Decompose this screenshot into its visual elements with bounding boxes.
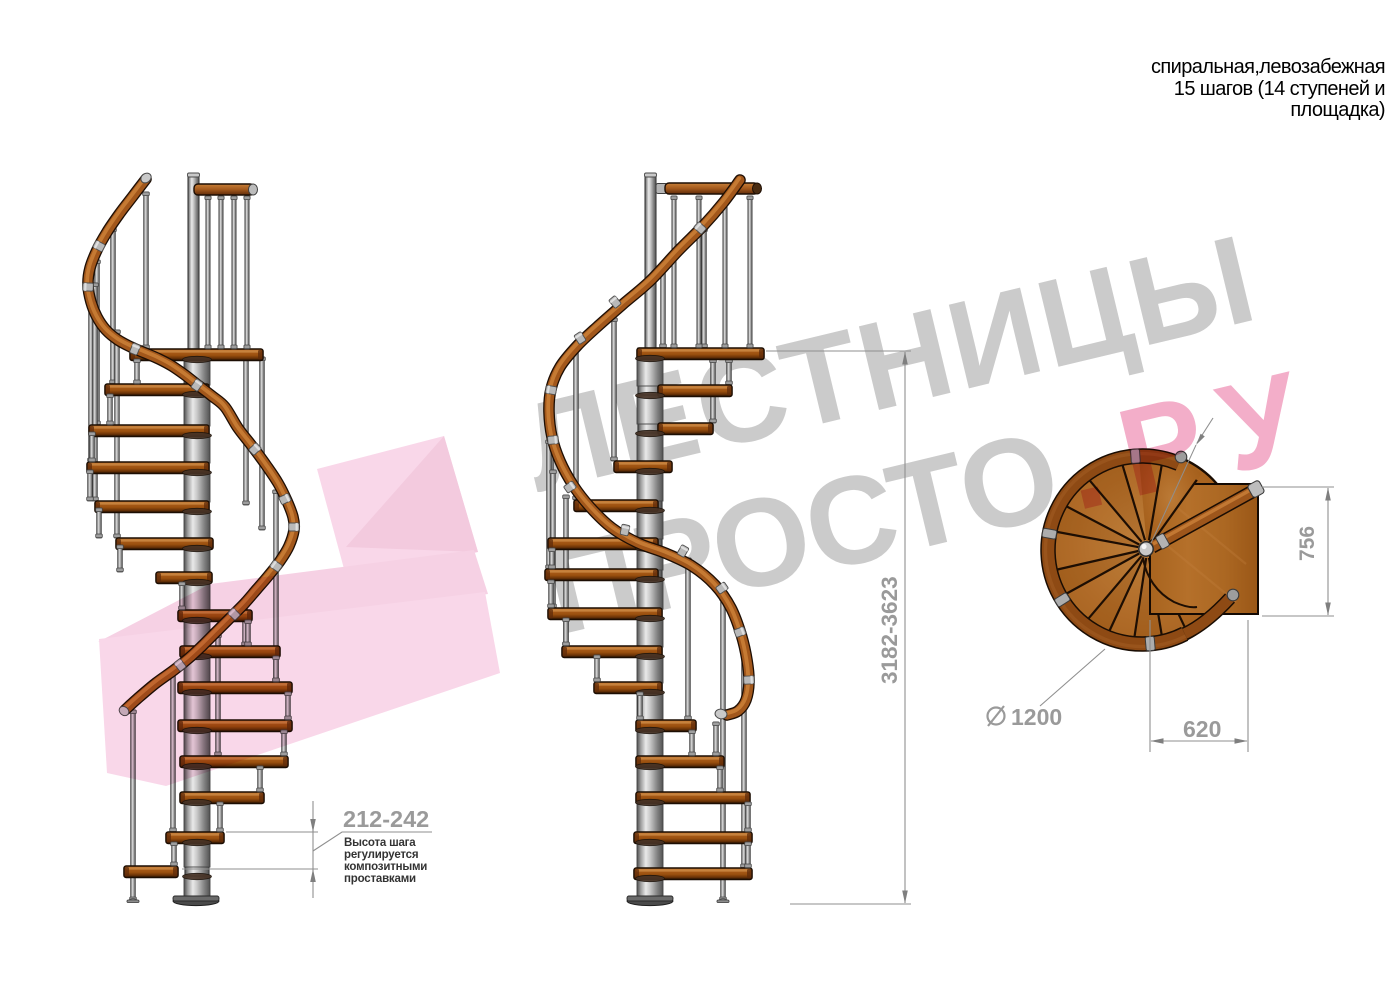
svg-text:регулируется: регулируется <box>344 849 418 861</box>
svg-text:проставками: проставками <box>344 873 416 885</box>
svg-text:620: 620 <box>1183 716 1221 742</box>
svg-text:1200: 1200 <box>1011 704 1062 730</box>
svg-text:3182-3623: 3182-3623 <box>877 576 902 684</box>
svg-text:композитными: композитными <box>344 861 427 873</box>
svg-text:Высота шага: Высота шага <box>344 837 416 849</box>
svg-text:756: 756 <box>1296 526 1319 561</box>
svg-text:212-242: 212-242 <box>343 806 429 832</box>
